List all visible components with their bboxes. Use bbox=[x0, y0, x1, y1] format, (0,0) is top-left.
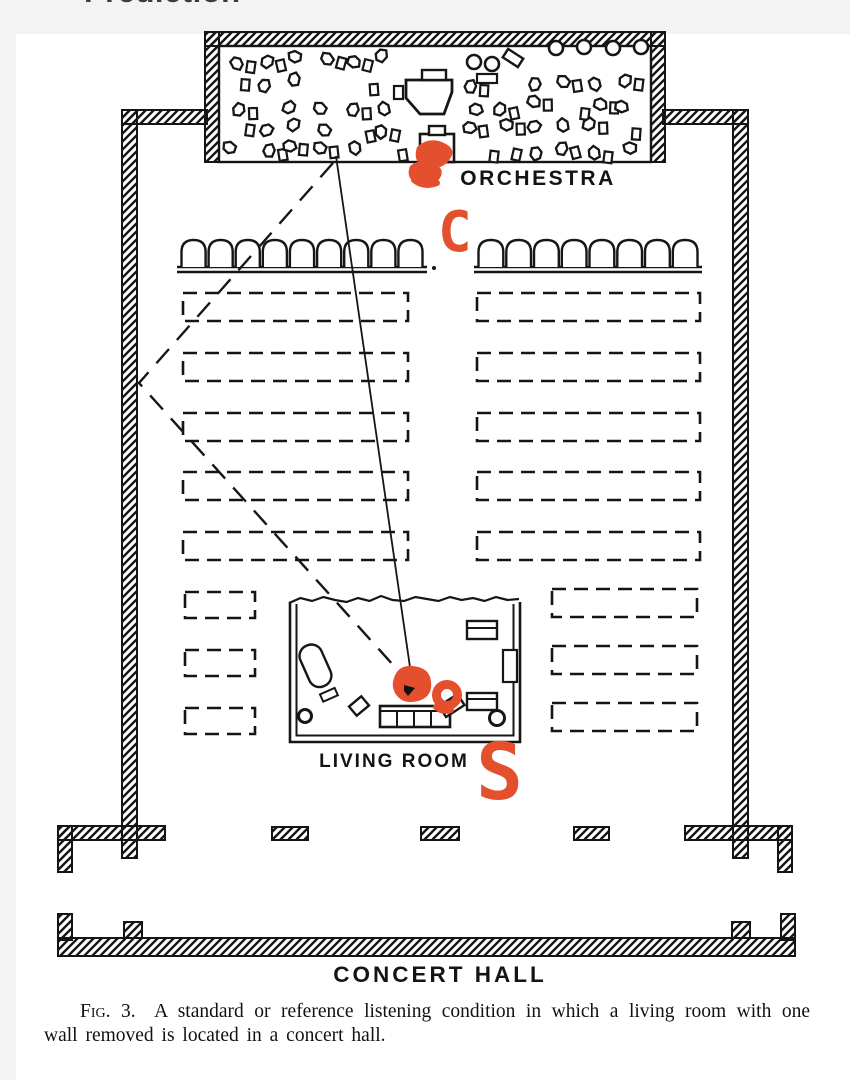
annotation-letter-s: S bbox=[476, 728, 523, 818]
listener-scribble bbox=[393, 666, 432, 702]
figure-caption-text: A standard or reference listening condit… bbox=[44, 1001, 810, 1046]
figure-caption: Fig. 3. A standard or reference listenin… bbox=[44, 1000, 810, 1048]
figure-caption-number: Fig. 3. bbox=[80, 1001, 136, 1022]
concert-hall-label: CONCERT HALL bbox=[333, 962, 546, 987]
diagram-labels: ORCHESTRA LIVING ROOM CONCERT HALL bbox=[319, 167, 616, 987]
listener-scribble bbox=[437, 685, 458, 706]
orchestra-label: ORCHESTRA bbox=[460, 167, 616, 190]
sound-path-lines bbox=[139, 156, 413, 688]
living-room-label: LIVING ROOM bbox=[319, 751, 469, 772]
audience-seat-rows bbox=[177, 240, 702, 734]
figure-3-diagram: ORCHESTRA LIVING ROOM CONCERT HALL C S bbox=[0, 0, 850, 1080]
direct-sound-line bbox=[336, 156, 413, 688]
annotation-letter-c: C bbox=[438, 200, 472, 265]
